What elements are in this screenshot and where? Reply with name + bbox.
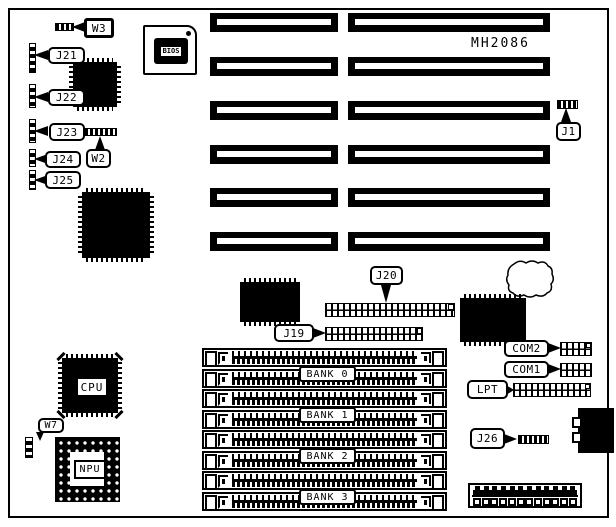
w2-jumper bbox=[84, 128, 117, 136]
board-model-title: MH2086 bbox=[471, 36, 530, 51]
j25-label: J25 bbox=[45, 171, 81, 189]
j26-label: J26 bbox=[470, 428, 505, 449]
j20-header bbox=[325, 303, 455, 317]
isa-slot bbox=[348, 232, 550, 251]
com1-label: COM1 bbox=[504, 361, 549, 378]
lpt-header-keypin bbox=[585, 384, 590, 389]
com1-header bbox=[560, 363, 592, 377]
j19-label: J19 bbox=[274, 324, 314, 342]
ic-chip-large bbox=[82, 192, 150, 258]
j19-header bbox=[325, 327, 423, 341]
j1-label: J1 bbox=[556, 122, 581, 141]
bank0-label: BANK 0 bbox=[299, 366, 356, 382]
lpt-header bbox=[513, 383, 591, 397]
bios-chip: BIOS bbox=[154, 38, 188, 64]
bios-label: BIOS bbox=[160, 46, 183, 57]
isa-slot bbox=[348, 57, 550, 76]
j26-jumper bbox=[518, 435, 549, 444]
j20-label: J20 bbox=[370, 266, 403, 285]
bank2-label: BANK 2 bbox=[299, 448, 356, 464]
w7-label: W7 bbox=[38, 418, 64, 433]
ic-chip bbox=[240, 282, 300, 322]
w7-jumper bbox=[25, 437, 33, 458]
isa-slot bbox=[348, 13, 550, 32]
cpu-label: CPU bbox=[76, 377, 108, 397]
pin1-dot bbox=[186, 31, 191, 36]
lpt-label: LPT bbox=[467, 380, 508, 399]
isa-slot bbox=[210, 13, 338, 32]
w3-label: W3 bbox=[84, 18, 114, 38]
isa-slot bbox=[210, 101, 338, 120]
simm-socket bbox=[202, 471, 447, 490]
j24-label: J24 bbox=[45, 151, 81, 168]
w7-pointer bbox=[36, 432, 44, 441]
ic-chip bbox=[460, 298, 526, 342]
com2-pointer bbox=[548, 343, 561, 353]
j23-pointer bbox=[34, 126, 48, 136]
npu-label: NPU bbox=[74, 460, 106, 479]
motherboard-diagram: MH2086 BIOS CPU bbox=[0, 0, 616, 527]
w2-label: W2 bbox=[86, 149, 111, 168]
npu-socket: NPU bbox=[55, 437, 120, 502]
w2-pointer bbox=[95, 136, 105, 150]
simm-socket bbox=[202, 430, 447, 449]
com2-label: COM2 bbox=[504, 340, 549, 357]
j26-pointer bbox=[504, 434, 517, 444]
isa-slot bbox=[210, 232, 338, 251]
j19-pointer bbox=[313, 328, 326, 338]
j20-pointer bbox=[381, 285, 391, 303]
j23-label: J23 bbox=[49, 123, 85, 141]
j22-pointer bbox=[34, 92, 48, 102]
simm-socket bbox=[202, 348, 447, 367]
j20-header-keypin bbox=[448, 304, 454, 310]
com1-pointer bbox=[548, 364, 561, 374]
power-connector bbox=[468, 483, 582, 508]
j21-pointer bbox=[34, 50, 48, 60]
j22-label: J22 bbox=[48, 89, 85, 106]
isa-slot bbox=[210, 145, 338, 164]
com2-header-keypin bbox=[586, 343, 591, 348]
simm-socket bbox=[202, 389, 447, 408]
oscillator-outline bbox=[504, 259, 556, 299]
keyboard-connector bbox=[578, 408, 614, 453]
isa-slot bbox=[348, 145, 550, 164]
bios-socket: BIOS bbox=[143, 25, 197, 75]
isa-slot bbox=[210, 188, 338, 207]
isa-slot bbox=[348, 101, 550, 120]
bank1-label: BANK 1 bbox=[299, 407, 356, 423]
j19-header-keypin bbox=[417, 328, 422, 334]
isa-slot bbox=[210, 57, 338, 76]
keyboard-connector-notch bbox=[572, 432, 582, 443]
cpu-chip: CPU bbox=[62, 358, 118, 413]
j21-label: J21 bbox=[48, 47, 85, 64]
isa-slot bbox=[348, 188, 550, 207]
keyboard-connector-notch bbox=[572, 417, 582, 428]
j1-pointer bbox=[561, 108, 571, 122]
bank3-label: BANK 3 bbox=[299, 489, 356, 505]
